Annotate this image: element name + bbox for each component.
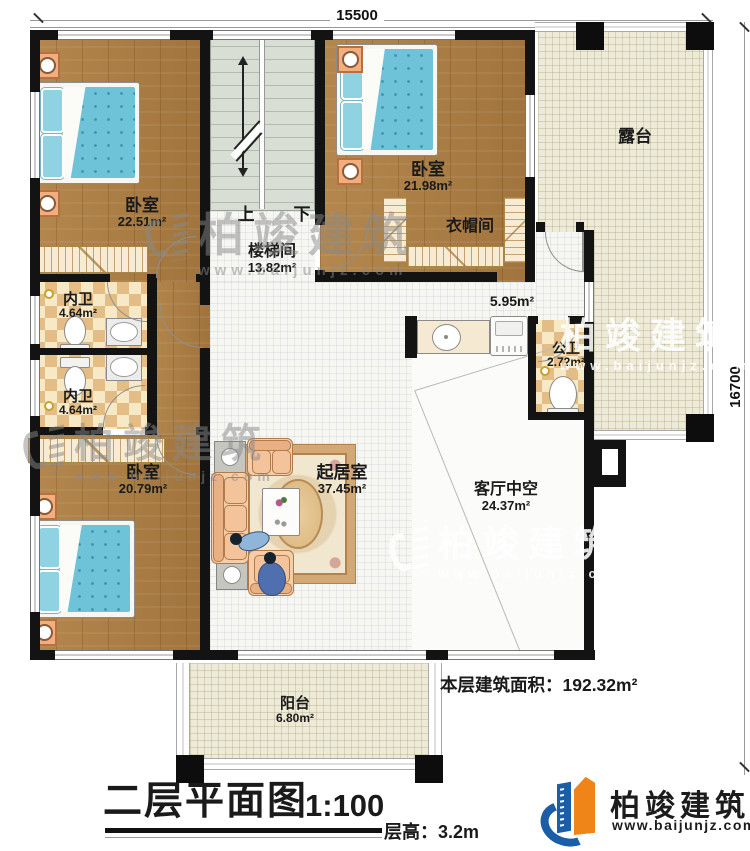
bed	[36, 82, 140, 184]
room-area-balcony: 6.80m²	[263, 712, 327, 725]
wall-segment	[584, 230, 594, 282]
terrace-railing	[703, 22, 713, 442]
wall-segment	[576, 222, 584, 232]
stairs-down-label: 下	[282, 206, 322, 224]
wall-segment	[196, 427, 210, 435]
column	[415, 755, 443, 783]
pillow-icon	[41, 134, 64, 179]
wardrobe	[28, 438, 165, 463]
window	[333, 30, 455, 40]
room-label-void: 客厅中空	[451, 482, 561, 499]
room-label-bedroom-bottom-left: 卧室	[93, 464, 193, 482]
wall-segment	[200, 30, 210, 305]
title-underline	[105, 828, 382, 833]
stairs-up-label: 上	[226, 206, 266, 224]
floor-height-label: 层高：3.2m	[384, 823, 504, 842]
dimension-top-value: 15500	[330, 7, 384, 25]
bed	[33, 520, 135, 618]
window	[30, 516, 40, 612]
floor-terrace-lower	[594, 232, 713, 432]
pillow-icon	[38, 526, 61, 569]
wall-segment	[147, 274, 157, 435]
floor-plan: 15500 16700	[0, 0, 750, 851]
wardrobe	[407, 246, 504, 267]
person	[258, 562, 286, 596]
room-area-stairwell: 13.82m²	[220, 261, 324, 275]
balcony-railing	[176, 663, 190, 770]
window	[525, 95, 535, 177]
wall-segment	[536, 222, 545, 232]
nightstand-icon	[337, 158, 363, 185]
door-leaf	[582, 232, 584, 272]
person-head	[264, 552, 276, 564]
mattress	[60, 525, 130, 612]
room-label-cloakroom: 衣帽间	[420, 219, 520, 236]
scale-label: 1:100	[305, 790, 395, 823]
wall-segment	[525, 177, 535, 282]
room-area-ensuite-bottom: 4.64m²	[43, 404, 113, 417]
wardrobe	[36, 246, 148, 273]
wardrobe	[383, 197, 407, 263]
wall-segment	[584, 322, 594, 660]
wall-segment	[525, 30, 535, 95]
mattress	[63, 87, 135, 178]
room-label-bedroom-top-right: 卧室	[378, 161, 478, 179]
room-label-living-room: 起居室	[287, 464, 397, 482]
room-area-ensuite-top: 4.64m²	[43, 307, 113, 320]
wall-segment	[405, 316, 417, 358]
room-label-terrace: 露台	[600, 128, 670, 146]
stair-arrow-down-icon	[238, 168, 248, 177]
window	[584, 282, 594, 322]
person-head	[230, 533, 242, 545]
stair-arrow-up-icon	[238, 56, 248, 65]
toilet-icon	[549, 376, 577, 412]
sink-icon	[106, 318, 142, 346]
dimension-right-value: 16700	[727, 357, 745, 417]
room-label-public-bath: 公卫	[538, 341, 594, 356]
sliding-door	[238, 650, 426, 660]
window	[55, 650, 173, 660]
sink-icon	[106, 353, 142, 381]
washing-machine-icon	[490, 316, 528, 356]
pillow-icon	[41, 88, 64, 133]
washbasin-counter	[417, 320, 490, 354]
pillow-icon	[38, 570, 61, 613]
column	[686, 22, 714, 50]
column	[686, 414, 714, 442]
room-area-bedroom-top-left: 22.51m²	[92, 215, 192, 229]
room-label-balcony: 阳台	[263, 696, 327, 712]
column	[576, 22, 604, 50]
wall-segment	[200, 348, 210, 660]
nightstand-icon	[337, 46, 363, 73]
window	[213, 30, 311, 40]
side-table	[216, 560, 248, 590]
balcony-railing	[176, 758, 442, 770]
window	[448, 650, 554, 660]
column	[176, 755, 204, 783]
toilet-icon	[64, 316, 86, 346]
wall-segment	[30, 274, 110, 282]
room-area-bedroom-bottom-left: 20.79m²	[93, 482, 193, 496]
terrace-railing	[594, 430, 694, 440]
wall-segment	[315, 272, 497, 282]
room-label-bedroom-top-left: 卧室	[92, 197, 192, 215]
brand-logo-icon	[540, 774, 604, 846]
window	[30, 92, 40, 178]
wall-segment	[30, 427, 103, 435]
title-underline-thin	[105, 837, 382, 838]
brand-url: www.baijunjz.com	[612, 817, 750, 833]
room-area-living-room: 37.45m²	[287, 482, 397, 496]
wall-segment	[528, 316, 536, 420]
room-area-bedroom-top-right: 21.98m²	[378, 179, 478, 193]
mattress	[363, 49, 433, 150]
window	[30, 296, 40, 344]
wall-segment	[528, 412, 590, 420]
floor-area-note: 本层建筑面积：192.32m²	[440, 676, 700, 694]
wall-segment	[196, 274, 210, 282]
wall-segment	[315, 30, 325, 225]
window	[30, 360, 40, 416]
wall-segment	[145, 427, 157, 435]
page-title: 二层平面图	[103, 782, 303, 823]
window	[58, 30, 170, 40]
room-label-stairwell: 楼梯间	[220, 244, 324, 261]
pillow-icon	[341, 101, 364, 150]
dimension-tick	[33, 13, 44, 24]
room-area-void: 24.37m²	[451, 499, 561, 513]
side-table	[214, 441, 246, 473]
wall-segment	[30, 348, 151, 355]
room-area-hallway: 5.95m²	[478, 294, 546, 309]
room-area-public-bath: 2.72m²	[536, 356, 596, 369]
shaft-opening	[602, 449, 618, 475]
